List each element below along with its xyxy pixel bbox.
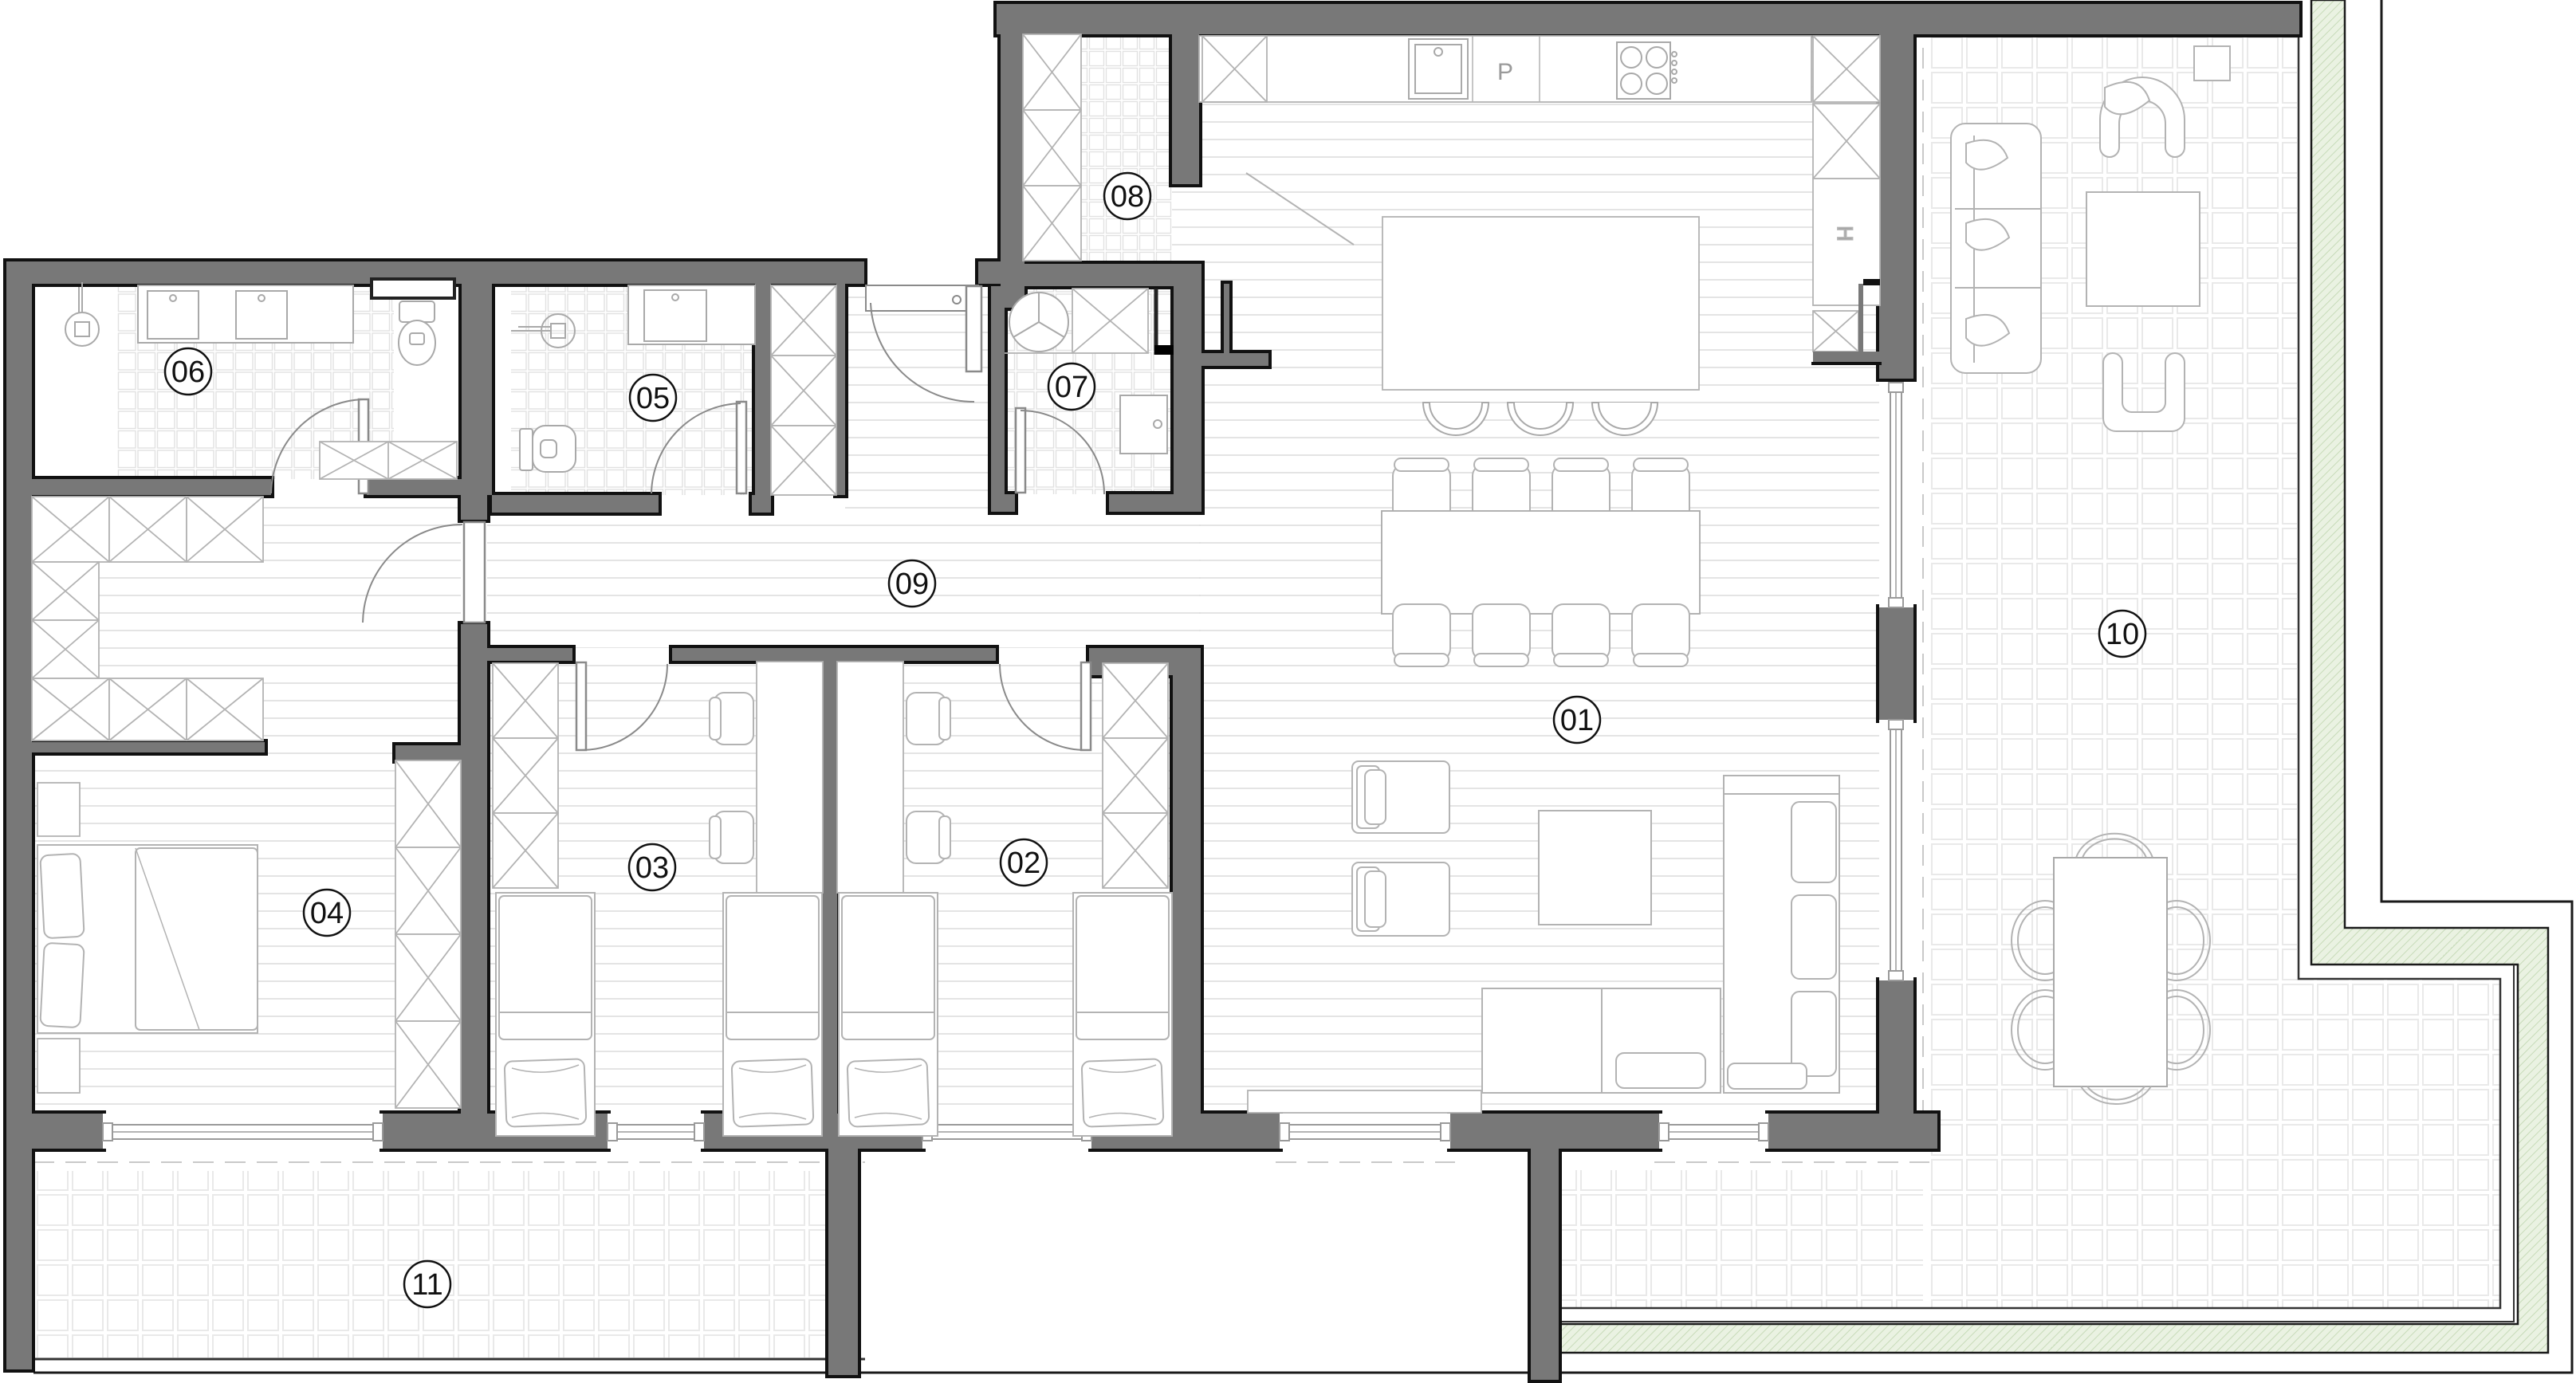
svg-text:P: P (1497, 59, 1513, 85)
svg-text:04: 04 (310, 897, 344, 930)
svg-text:03: 03 (635, 851, 669, 885)
svg-text:H: H (1833, 226, 1857, 242)
svg-text:05: 05 (636, 382, 670, 415)
svg-text:08: 08 (1111, 180, 1144, 214)
svg-text:09: 09 (895, 568, 929, 601)
svg-text:07: 07 (1055, 371, 1088, 404)
svg-text:11: 11 (411, 1268, 442, 1302)
svg-text:06: 06 (171, 356, 205, 389)
svg-text:02: 02 (1007, 847, 1040, 880)
svg-text:01: 01 (1560, 704, 1594, 737)
svg-text:10: 10 (2106, 618, 2139, 651)
